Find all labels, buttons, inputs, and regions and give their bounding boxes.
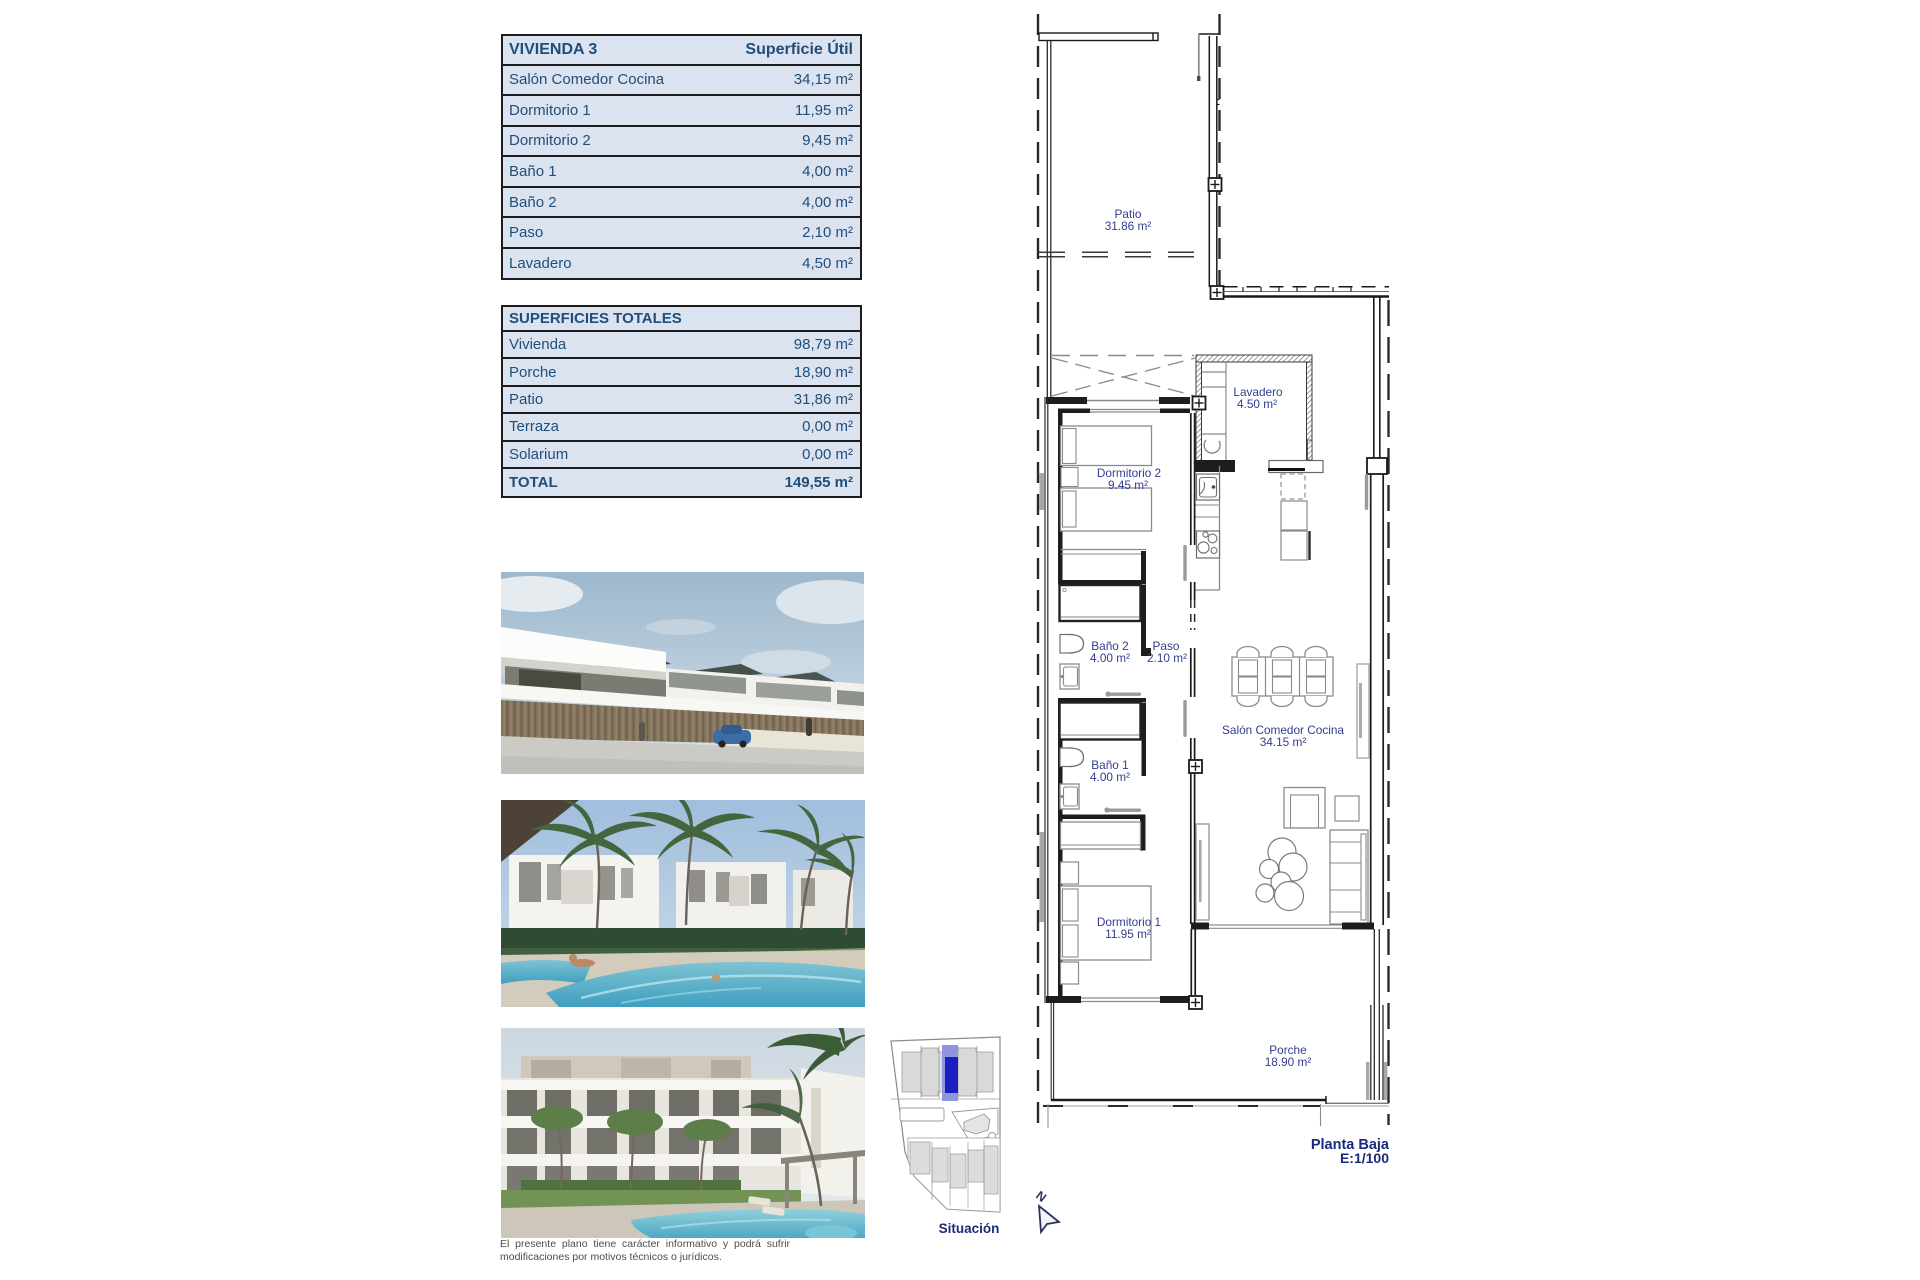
svg-text:2.10 m²: 2.10 m² [1147, 651, 1187, 665]
svg-text:E:1/100: E:1/100 [1340, 1150, 1389, 1166]
svg-text:4.50 m²: 4.50 m² [1237, 397, 1277, 411]
svg-text:4.00 m²: 4.00 m² [1090, 651, 1130, 665]
svg-text:9.45 m²: 9.45 m² [1108, 478, 1148, 492]
svg-text:31.86 m²: 31.86 m² [1105, 219, 1152, 233]
svg-text:34.15 m²: 34.15 m² [1260, 735, 1307, 749]
svg-text:4.00 m²: 4.00 m² [1090, 770, 1130, 784]
svg-text:Situación: Situación [939, 1221, 1000, 1236]
svg-text:11.95 m²: 11.95 m² [1105, 927, 1151, 941]
svg-text:N: N [1033, 1188, 1049, 1205]
svg-text:18.90 m²: 18.90 m² [1265, 1055, 1312, 1069]
